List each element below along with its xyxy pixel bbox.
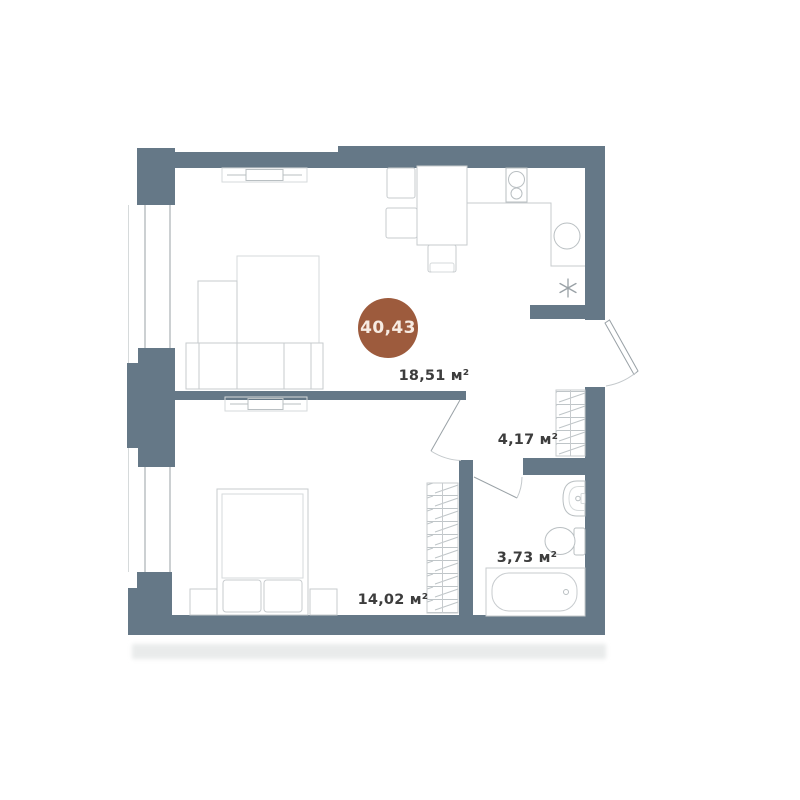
- wall-right-lower: [585, 387, 605, 635]
- nightstand: [310, 589, 337, 615]
- asterisk-icon: [560, 279, 576, 297]
- bathroom-door: [474, 477, 522, 498]
- wardrobe-hallway: [556, 390, 585, 456]
- chair: [428, 245, 456, 272]
- entrance-door-swing-arc: [606, 373, 636, 387]
- wall-pilaster-bump: [127, 363, 138, 448]
- bathroom-door-swing-arc: [517, 477, 522, 498]
- stove: [506, 168, 527, 202]
- room-area-label-bathroom: 3,73 м²: [495, 550, 559, 566]
- wall-bottom: [128, 615, 605, 635]
- dining-table: [417, 166, 467, 245]
- pillow: [223, 580, 261, 612]
- total-area-badge: 40,43: [358, 298, 418, 358]
- sofa-seats: [186, 343, 323, 389]
- kitchen: [386, 166, 585, 297]
- window-frame: [145, 467, 170, 572]
- window-upper: [145, 205, 170, 348]
- wall-kitchen-stub: [530, 305, 605, 319]
- window-glazing: [152, 205, 158, 348]
- sofa-chaise: [198, 281, 237, 343]
- wall-partition-bedroom-bath: [459, 460, 473, 635]
- kitchen-sink: [554, 223, 580, 249]
- bedroom-door-swing-arc: [431, 451, 461, 461]
- wall-top-right: [338, 146, 605, 168]
- window-frame: [145, 205, 170, 348]
- toilet-tank: [574, 528, 585, 555]
- room-area-label-bedroom: 14,02 м²: [357, 592, 429, 608]
- building-shadow: [132, 644, 606, 659]
- wall-corner-top-left: [137, 148, 175, 205]
- room-area-label-living-kitchen: 18,51 м²: [398, 368, 470, 384]
- bed-group: [190, 489, 337, 615]
- bedroom-door-leaf: [431, 400, 460, 451]
- chair: [387, 168, 415, 198]
- wall-partition-hall-bath: [523, 458, 585, 475]
- bathroom-fixtures: [486, 481, 585, 616]
- radiator-core: [248, 399, 283, 410]
- bedroom-door: [431, 400, 461, 461]
- sofa-group: [186, 256, 323, 389]
- nightstand: [190, 589, 217, 615]
- window-glazing: [152, 467, 158, 572]
- rug: [237, 256, 319, 343]
- bathroom-door-leaf: [474, 477, 517, 498]
- floor-plan: [0, 0, 800, 800]
- floor-plan-canvas: 40,43 18,51 м² 4,17 м² 3,73 м² 14,02 м²: [0, 0, 800, 800]
- wall-corner-bottom-left-b: [128, 588, 172, 617]
- wardrobe-bedroom: [427, 483, 458, 613]
- room-area-label-hallway: 4,17 м²: [496, 432, 560, 448]
- window-lower: [145, 467, 170, 572]
- radiator-core: [246, 170, 283, 181]
- entrance-door: [605, 320, 638, 386]
- wall-right-upper: [585, 146, 605, 320]
- wall-pilaster: [138, 348, 175, 467]
- chair: [386, 208, 417, 238]
- wall-partition-living-bedroom: [170, 391, 466, 400]
- radiator-living: [222, 168, 307, 182]
- entrance-door-leaf: [605, 320, 638, 375]
- pillow: [264, 580, 302, 612]
